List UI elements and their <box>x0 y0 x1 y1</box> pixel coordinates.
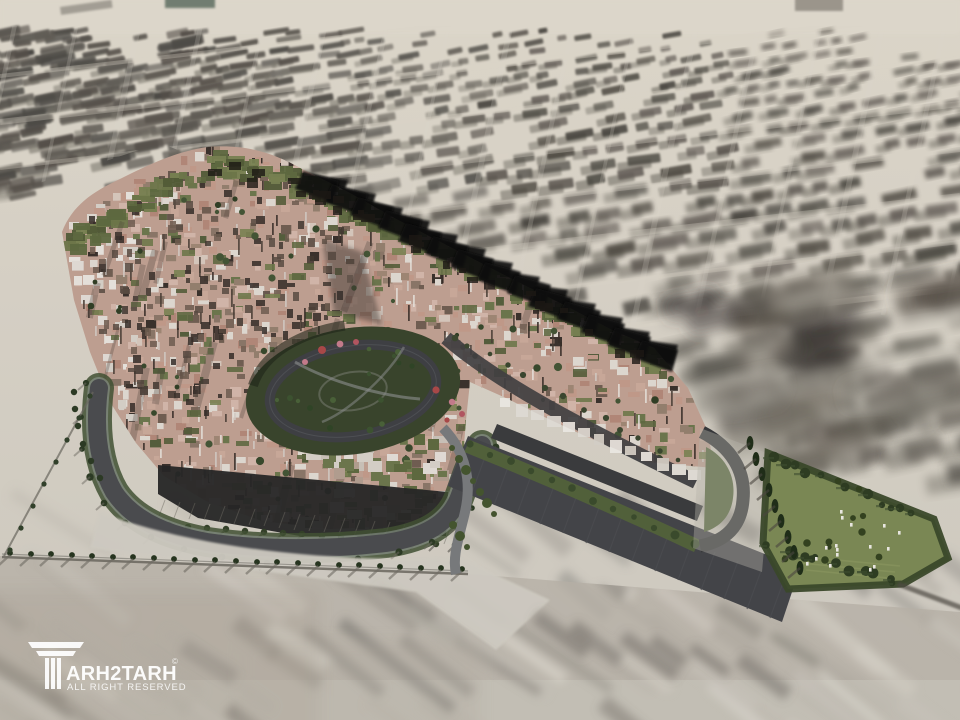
svg-text:ALL RIGHT RESERVED: ALL RIGHT RESERVED <box>67 682 187 693</box>
svg-text:©: © <box>172 657 178 666</box>
